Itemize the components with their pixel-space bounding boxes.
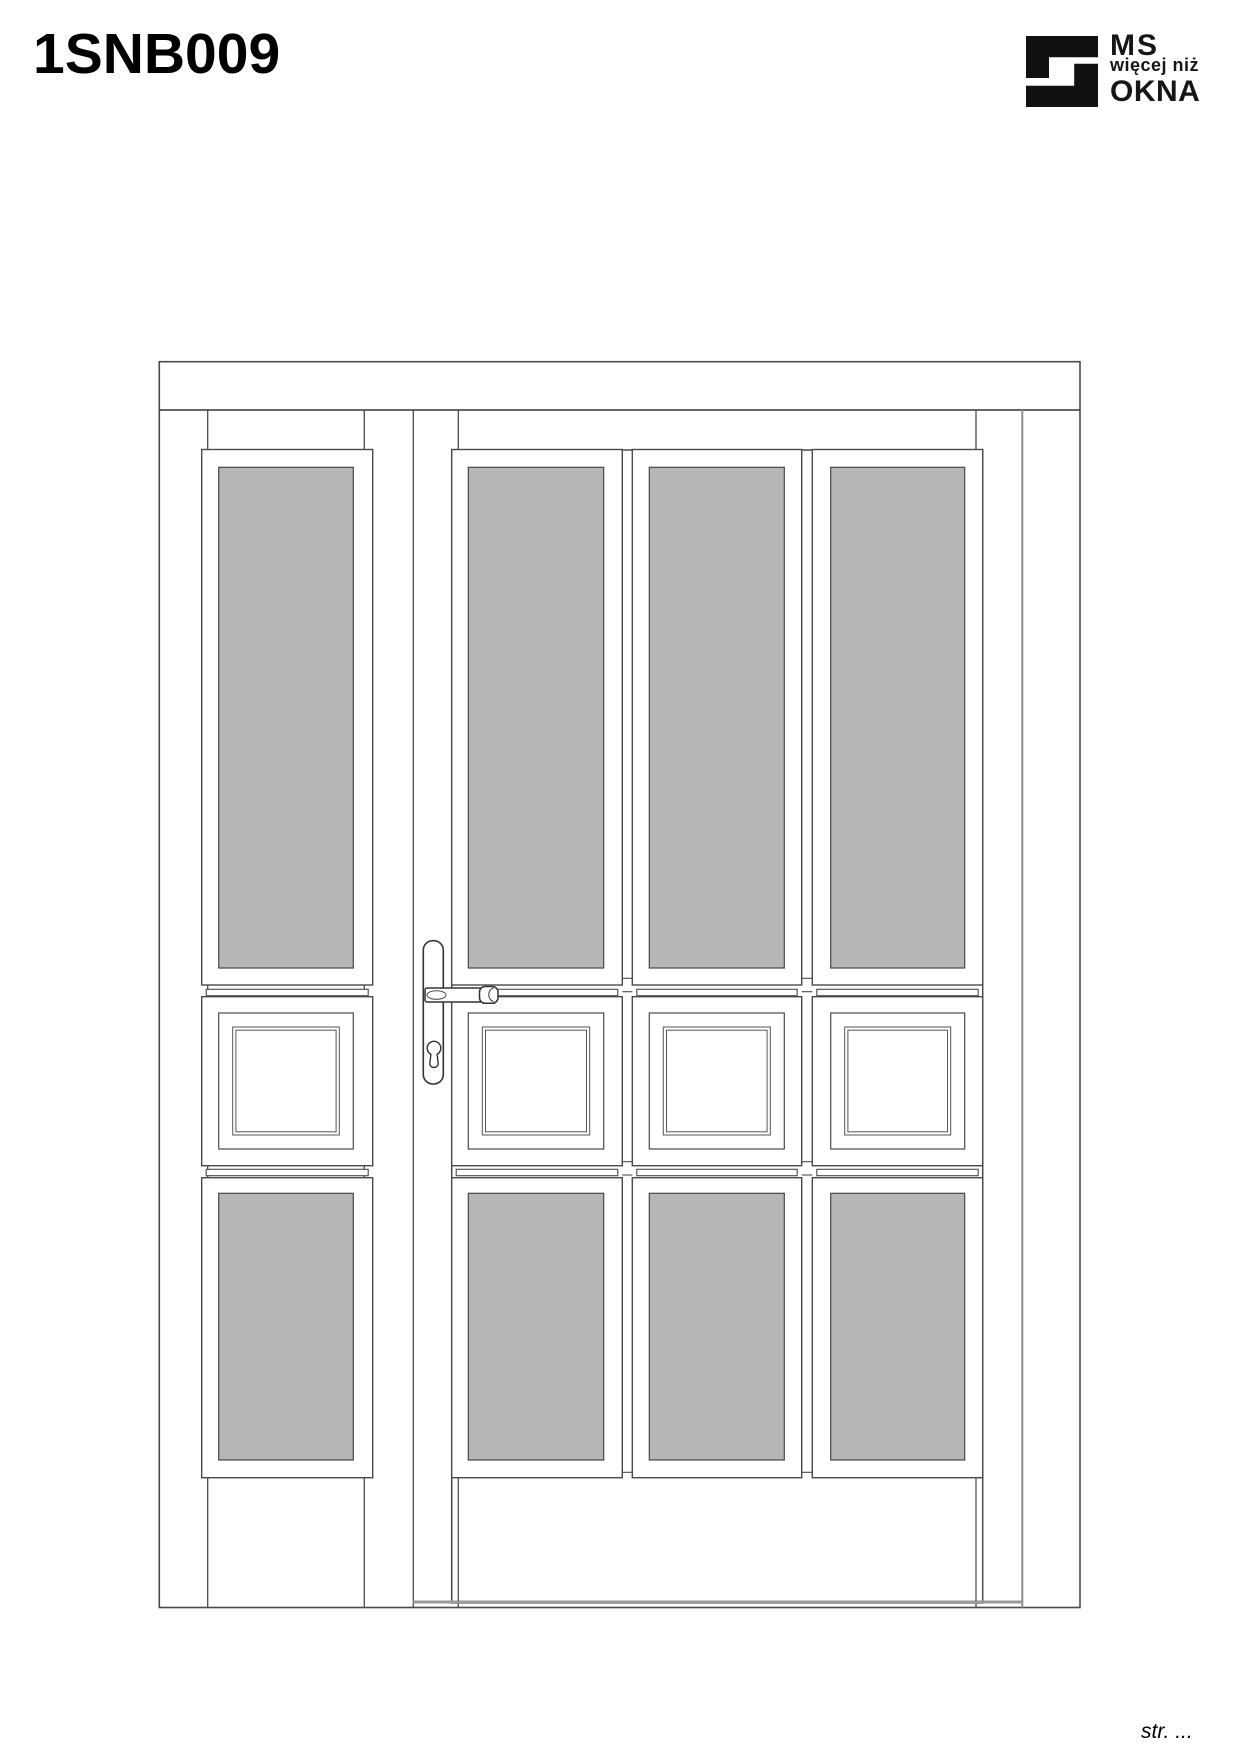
rail-2	[637, 1169, 797, 1175]
rail-2	[817, 1169, 978, 1175]
rail-1	[637, 989, 797, 995]
rail-2	[456, 1169, 618, 1175]
glass-bottom	[831, 1193, 965, 1460]
glass-bottom	[219, 1193, 354, 1460]
rail-1	[206, 989, 368, 995]
handle-lever-bar	[425, 988, 482, 1002]
raised-panel	[219, 1013, 354, 1149]
rail-2	[206, 1169, 368, 1175]
glass-bottom	[468, 1193, 603, 1460]
sidelight-column	[202, 450, 373, 1478]
page-number: str. ...	[1141, 1720, 1193, 1744]
rail-1	[817, 989, 978, 995]
glass-top	[831, 467, 965, 968]
glass-top	[649, 467, 784, 968]
glass-top	[468, 467, 603, 968]
catalog-page: 1SNB009 MS więcej niż OKNA str. ...	[0, 0, 1240, 1755]
door-column-2	[632, 450, 801, 1478]
glass-top	[219, 467, 354, 968]
raised-panel	[468, 1013, 603, 1149]
raised-panel	[831, 1013, 965, 1149]
door-column-3	[812, 450, 982, 1478]
door-technical-drawing	[0, 0, 1240, 1755]
glass-bottom	[649, 1193, 784, 1460]
door-column-1	[452, 450, 623, 1478]
raised-panel	[649, 1013, 784, 1149]
